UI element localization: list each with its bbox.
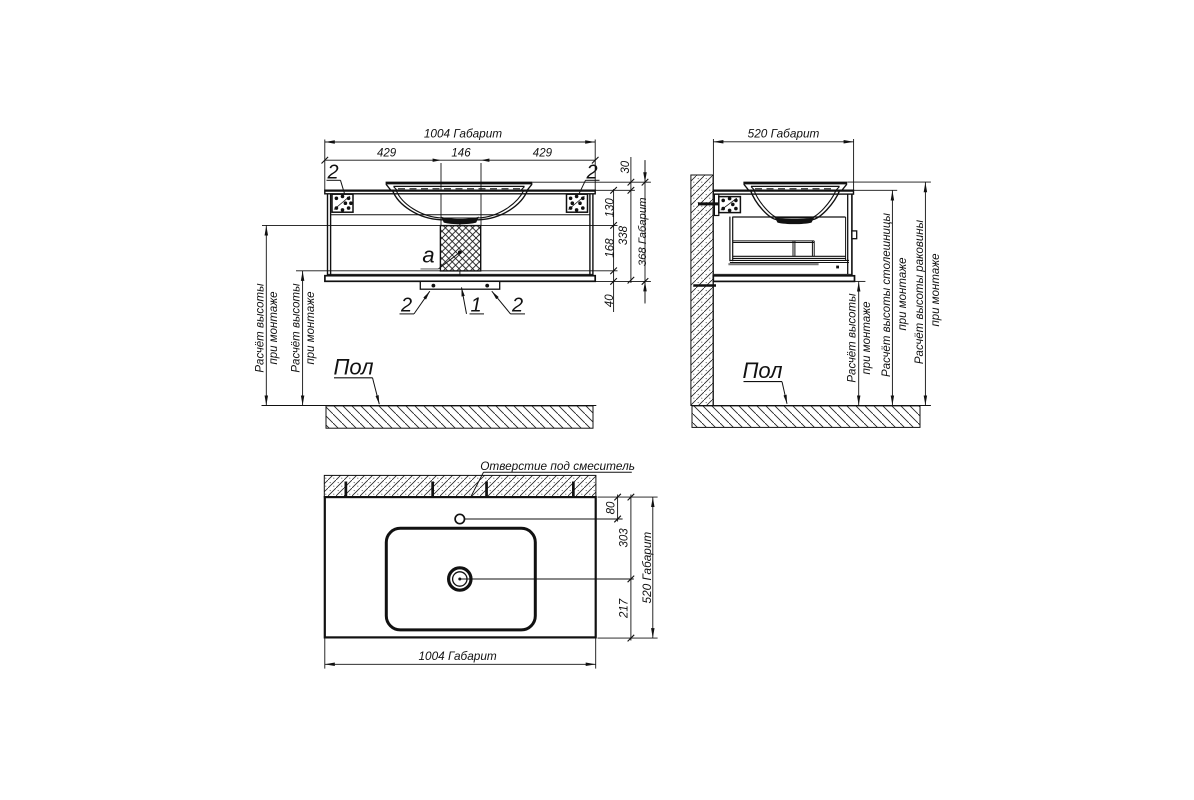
svg-text:168: 168 <box>604 238 616 258</box>
svg-text:429: 429 <box>533 148 553 160</box>
svg-text:338: 338 <box>618 225 630 245</box>
svg-text:а: а <box>422 243 434 268</box>
svg-text:520 Габарит: 520 Габарит <box>640 532 654 604</box>
svg-text:1: 1 <box>470 295 481 317</box>
svg-text:2: 2 <box>511 295 523 317</box>
svg-text:40: 40 <box>604 294 616 307</box>
svg-text:при монтаже: при монтаже <box>930 253 942 326</box>
svg-text:520 Габарит: 520 Габарит <box>748 127 820 141</box>
svg-text:Расчёт высоты: Расчёт высоты <box>254 283 266 373</box>
svg-text:1004 Габарит: 1004 Габарит <box>424 127 502 141</box>
svg-text:1004 Габарит: 1004 Габарит <box>418 649 496 663</box>
svg-text:30: 30 <box>620 160 632 173</box>
svg-text:при монтаже: при монтаже <box>268 291 280 364</box>
svg-text:при монтаже: при монтаже <box>861 301 873 374</box>
svg-text:217: 217 <box>619 598 631 619</box>
svg-text:при монтаже: при монтаже <box>897 257 909 330</box>
svg-text:Отверстие под смеситель: Отверстие под смеситель <box>480 459 635 473</box>
svg-text:303: 303 <box>619 528 631 548</box>
svg-text:Расчёт высоты: Расчёт высоты <box>847 293 859 383</box>
svg-text:80: 80 <box>605 501 617 514</box>
svg-text:368 Габарит: 368 Габарит <box>637 197 649 266</box>
svg-text:Расчёт высоты столешницы: Расчёт высоты столешницы <box>881 212 893 376</box>
svg-text:при монтаже: при монтаже <box>305 291 317 364</box>
svg-text:429: 429 <box>377 148 397 160</box>
svg-text:130: 130 <box>604 198 616 218</box>
svg-text:Расчёт высоты: Расчёт высоты <box>291 283 303 373</box>
svg-text:Расчёт высоты раковины: Расчёт высоты раковины <box>914 219 926 364</box>
svg-text:146: 146 <box>451 148 471 160</box>
svg-text:Пол: Пол <box>333 355 373 380</box>
svg-text:Пол: Пол <box>742 358 782 383</box>
svg-text:2: 2 <box>400 295 412 317</box>
